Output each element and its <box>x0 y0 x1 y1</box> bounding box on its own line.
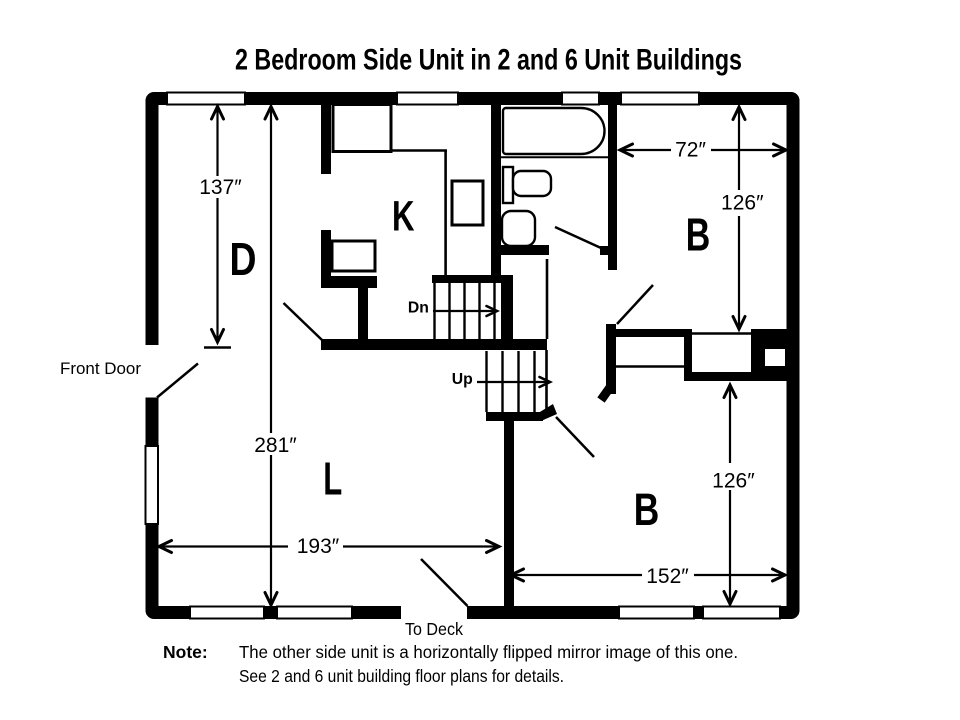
svg-text:The other side unit is a horiz: The other side unit is a horizontally fl… <box>239 642 738 662</box>
svg-text:137″: 137″ <box>199 176 242 199</box>
svg-text:72″: 72″ <box>675 139 706 162</box>
svg-text:152″: 152″ <box>646 565 689 588</box>
svg-text:126″: 126″ <box>721 192 764 215</box>
svg-text:2 Bedroom Side Unit in 2 and 6: 2 Bedroom Side Unit in 2 and 6 Unit Buil… <box>235 44 742 77</box>
svg-text:K: K <box>392 194 415 241</box>
svg-text:193″: 193″ <box>297 535 340 558</box>
svg-text:Dn: Dn <box>408 300 429 317</box>
svg-text:Note:: Note: <box>163 642 208 662</box>
svg-text:See 2 and 6 unit building floo: See 2 and 6 unit building floor plans fo… <box>239 666 564 686</box>
svg-text:L: L <box>323 453 342 505</box>
svg-text:Front Door: Front Door <box>60 360 142 378</box>
svg-text:To Deck: To Deck <box>405 619 463 639</box>
svg-text:281″: 281″ <box>254 434 297 457</box>
svg-text:Up: Up <box>452 371 473 388</box>
svg-text:126″: 126″ <box>712 470 755 493</box>
svg-text:D: D <box>230 233 257 285</box>
svg-text:B: B <box>686 209 711 261</box>
svg-text:B: B <box>634 484 660 535</box>
